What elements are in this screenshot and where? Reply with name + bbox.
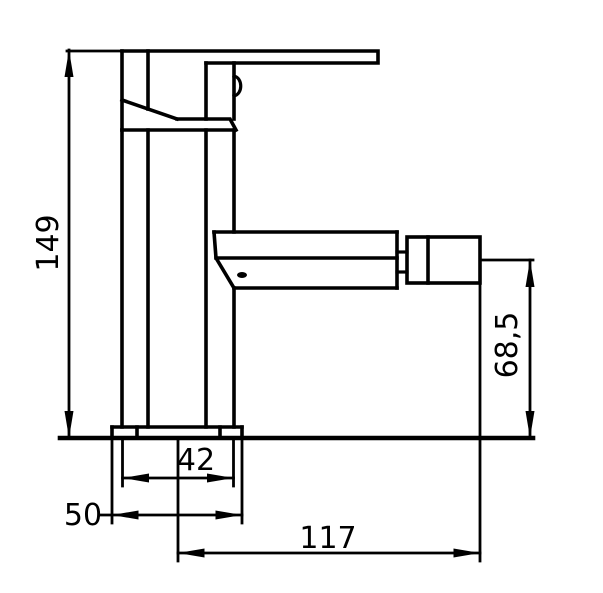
base-width-label: 50 (64, 498, 102, 533)
reach-arrow-left (178, 549, 205, 558)
lever-top-and-end (122, 51, 378, 63)
height-arrow-bottom (65, 411, 74, 438)
body-width-arrow-left (123, 474, 150, 483)
base-width-arrow-left (112, 511, 139, 520)
cartridge-cap (122, 63, 241, 130)
dimension-outlet-height: 68,5 (480, 260, 535, 438)
faucet-outline (60, 51, 533, 438)
spout (214, 232, 407, 288)
spout-left-edge (214, 232, 234, 288)
aerator-head (407, 237, 480, 283)
body-column (122, 130, 234, 427)
outlet-height-arrow-top (526, 260, 535, 287)
reach-arrow-right (454, 549, 481, 558)
base-width-arrow-right (216, 511, 243, 520)
height-label: 149 (31, 214, 66, 271)
aerator-head-body (407, 237, 480, 283)
outlet-height-label: 68,5 (490, 312, 525, 379)
dimension-height: 149 (31, 50, 122, 438)
handle-lever (122, 51, 378, 130)
dimension-reach: 117 (178, 284, 480, 561)
height-arrow-top (65, 50, 74, 77)
faucet-dimension-drawing: 149 42 50 117 (0, 0, 603, 593)
dimension-base-width: 50 (64, 441, 242, 533)
spout-screw-dot (237, 272, 247, 278)
outlet-height-arrow-bottom (526, 411, 535, 438)
technical-drawing-canvas: 149 42 50 117 (0, 0, 603, 593)
body-width-label: 42 (177, 443, 215, 478)
reach-label: 117 (299, 521, 356, 556)
